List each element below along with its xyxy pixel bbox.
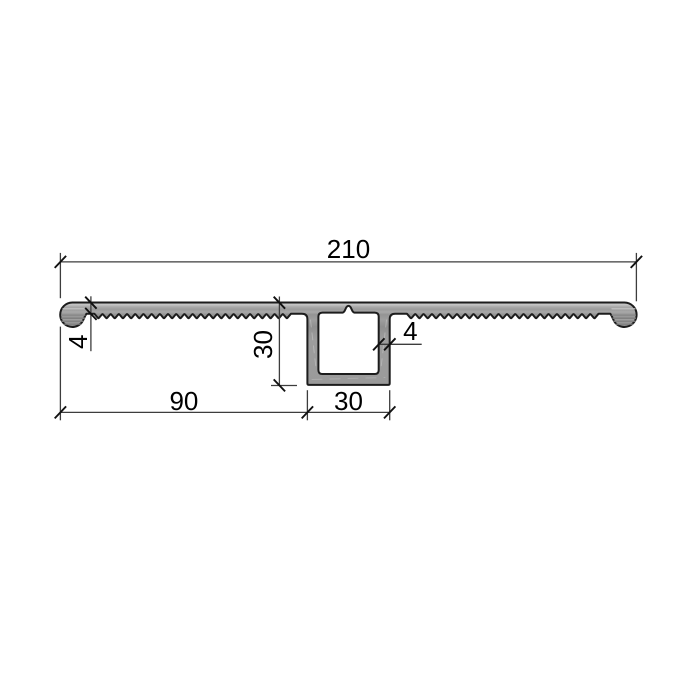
svg-text:4: 4: [63, 335, 93, 349]
svg-text:90: 90: [169, 386, 198, 416]
svg-text:30: 30: [248, 330, 278, 359]
svg-text:30: 30: [334, 386, 363, 416]
svg-text:210: 210: [327, 234, 370, 264]
svg-text:4: 4: [403, 316, 417, 346]
